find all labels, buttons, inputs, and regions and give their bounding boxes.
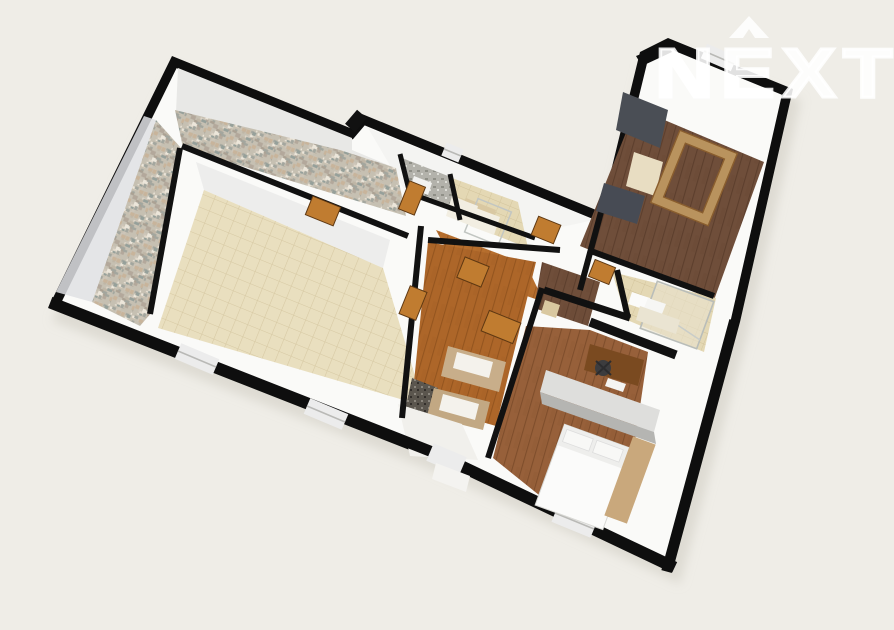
svg-text:NEXT: NEXT bbox=[655, 34, 894, 112]
